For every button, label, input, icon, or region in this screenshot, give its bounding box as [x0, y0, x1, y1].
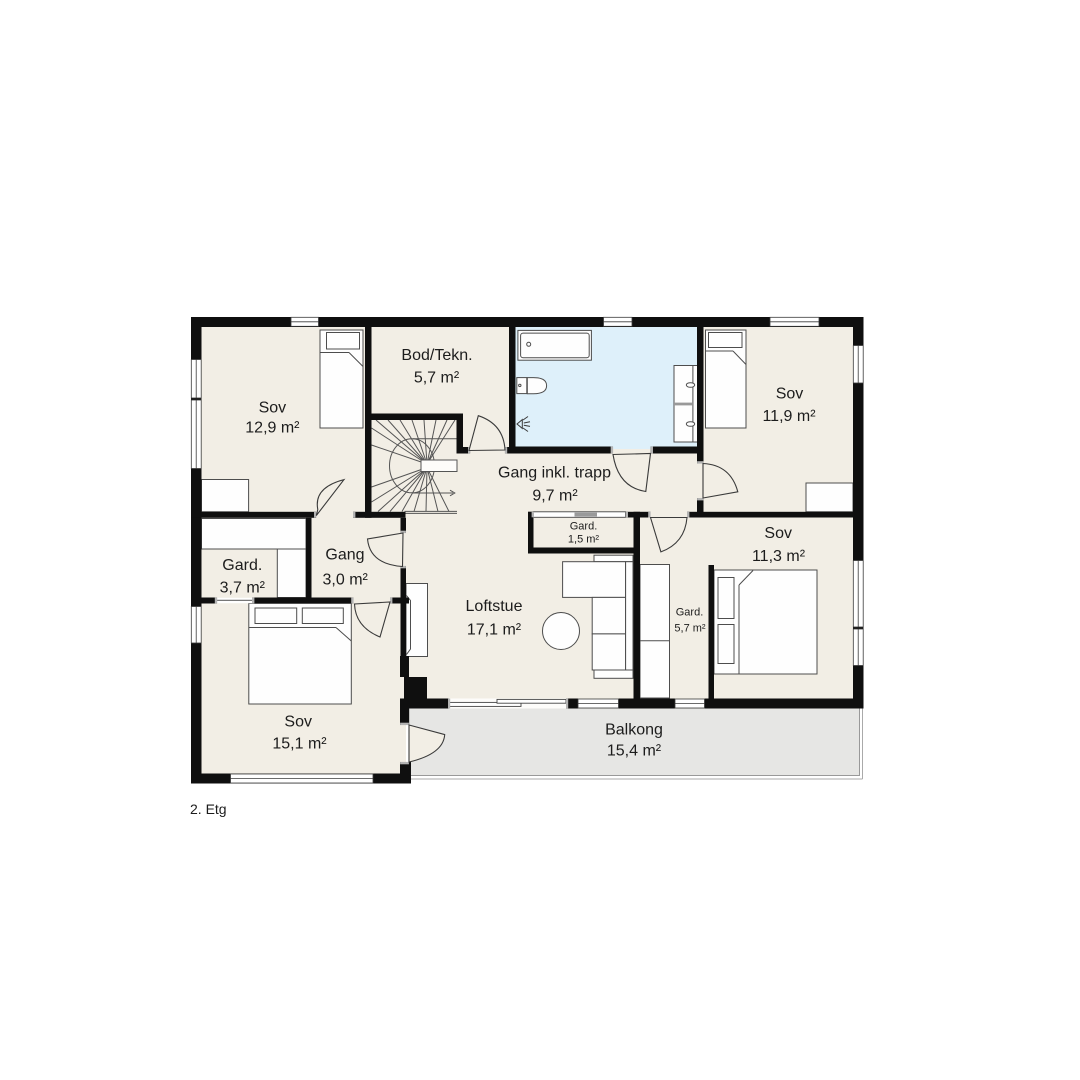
svg-text:Loftstue: Loftstue: [466, 598, 523, 615]
svg-text:Sov: Sov: [259, 400, 287, 417]
svg-text:17,1 m²: 17,1 m²: [467, 622, 522, 639]
svg-text:Gard.: Gard.: [570, 521, 598, 533]
svg-text:15,1 m²: 15,1 m²: [272, 735, 327, 752]
svg-text:1,5 m²: 1,5 m²: [568, 534, 600, 546]
svg-text:11,9 m²: 11,9 m²: [762, 408, 816, 425]
svg-text:Sov: Sov: [776, 386, 804, 403]
svg-text:Gard.: Gard.: [222, 557, 262, 574]
svg-text:Gard.: Gard.: [676, 607, 704, 619]
svg-text:Sov: Sov: [764, 525, 792, 542]
svg-text:9,7 m²: 9,7 m²: [532, 488, 578, 505]
svg-text:Gang: Gang: [325, 547, 364, 564]
svg-text:3,7 m²: 3,7 m²: [220, 580, 266, 597]
svg-text:Gang inkl. trapp: Gang inkl. trapp: [498, 465, 611, 482]
svg-text:Sov: Sov: [284, 713, 312, 730]
svg-text:Bod/Tekn.: Bod/Tekn.: [401, 347, 472, 364]
svg-text:11,3 m²: 11,3 m²: [752, 548, 806, 565]
svg-text:Balkong: Balkong: [605, 722, 663, 739]
svg-text:15,4 m²: 15,4 m²: [607, 743, 662, 760]
svg-text:5,7 m²: 5,7 m²: [674, 623, 706, 635]
svg-text:3,0 m²: 3,0 m²: [323, 572, 369, 589]
svg-text:2. Etg: 2. Etg: [190, 801, 227, 817]
svg-text:5,7 m²: 5,7 m²: [414, 370, 460, 387]
svg-text:12,9 m²: 12,9 m²: [245, 420, 300, 437]
